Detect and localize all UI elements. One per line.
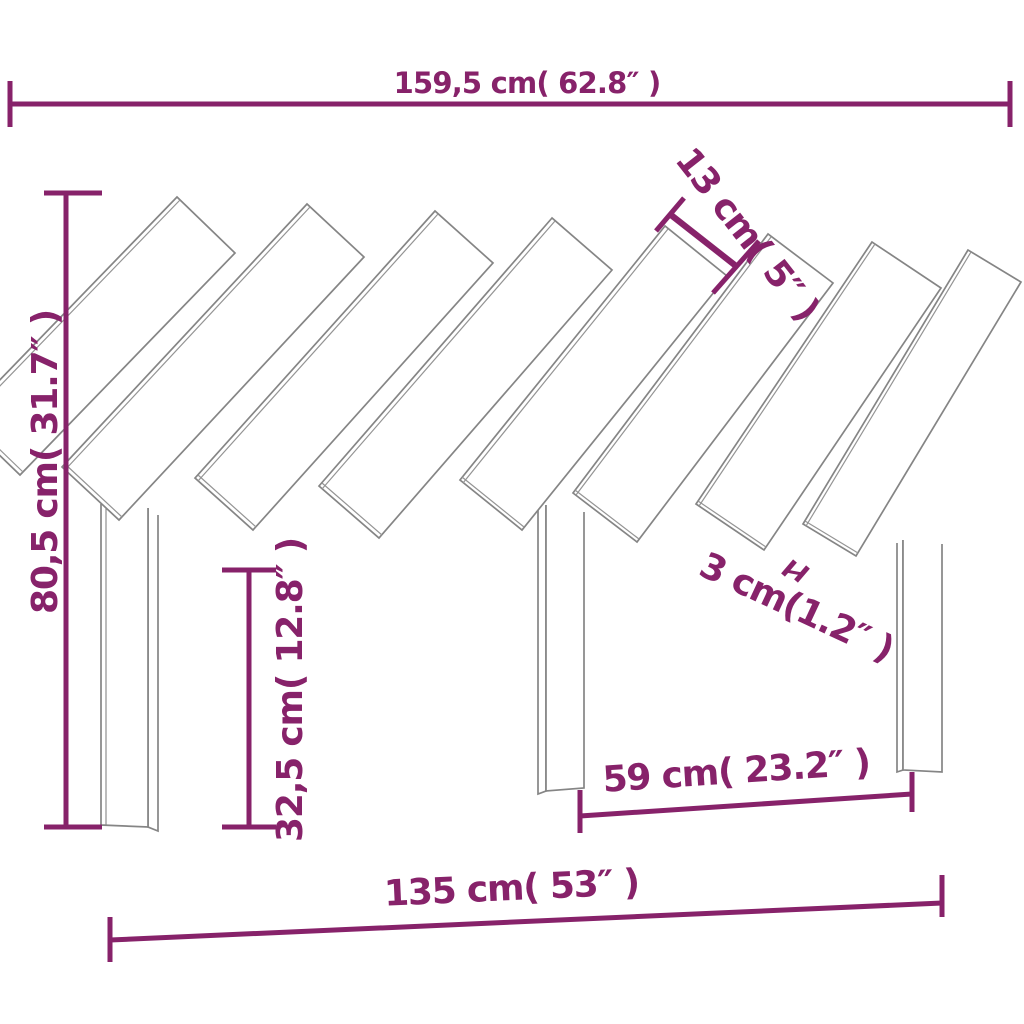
- gap-connector: [786, 571, 802, 574]
- dimension-line: [110, 903, 942, 940]
- dimension-label-bottom-width: 135 cm( 53″ ): [383, 862, 640, 915]
- dimension-label-inner-span: 59 cm( 23.2″ ): [601, 742, 871, 801]
- leg-left-front-face: [101, 504, 148, 827]
- dimension-leg-height: 32,5 cm( 12.8″ ): [222, 538, 311, 842]
- leg-middle-side-face: [538, 505, 546, 794]
- dimension-tick-upper: [656, 198, 684, 231]
- leg-right-front-face: [903, 540, 942, 772]
- leg-right: [897, 540, 942, 772]
- dimension-inner-span: 59 cm( 23.2″ ): [580, 742, 912, 833]
- diagram-canvas: 159,5 cm( 62.8″ ) 80,5 cm( 31.7″ ) 13 cm…: [0, 0, 1024, 1024]
- dimension-label-leg-height: 32,5 cm( 12.8″ ): [270, 538, 311, 842]
- dimension-bottom-width: 135 cm( 53″ ): [110, 862, 942, 962]
- leg-middle: [538, 505, 584, 794]
- dimension-label-total-width: 159,5 cm( 62.8″ ): [394, 66, 661, 100]
- dimension-label-total-height: 80,5 cm( 31.7″ ): [25, 310, 66, 614]
- slats: [0, 197, 1021, 556]
- dimension-label-slat-gap: 3 cm(1.2″ ): [693, 545, 899, 670]
- leg-middle-front-face: [546, 505, 584, 791]
- dimension-slat-gap: 3 cm(1.2″ ): [693, 545, 899, 670]
- leg-right-side-face: [897, 540, 903, 772]
- headboard-dimension-diagram: 159,5 cm( 62.8″ ) 80,5 cm( 31.7″ ) 13 cm…: [0, 0, 1024, 1024]
- leg-left-side-face: [148, 508, 158, 831]
- dimension-total-width: 159,5 cm( 62.8″ ): [10, 66, 1010, 127]
- leg-left: [101, 504, 158, 831]
